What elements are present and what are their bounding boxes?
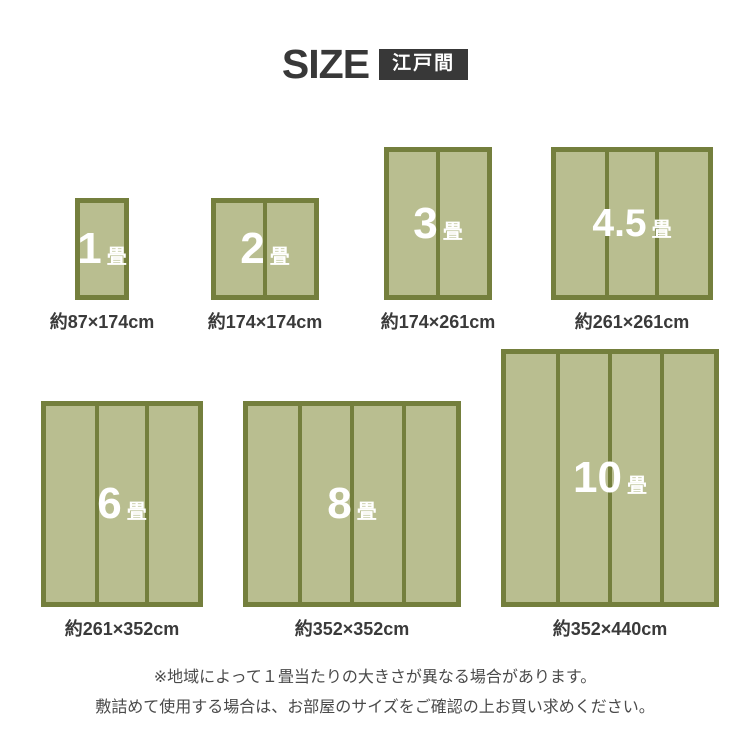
mat-size-label: 1 畳 [80, 203, 124, 295]
mat-size-number: 4.5 [592, 204, 646, 243]
mat-size-unit: 畳 [127, 495, 147, 524]
mat-size-number: 10 [573, 456, 622, 500]
tatami-mat-3jo: 3 畳 [384, 147, 492, 300]
mat-size-number: 3 [413, 202, 437, 246]
mat-size-unit: 畳 [107, 240, 127, 269]
tatami-mat-1jo: 1 畳 [75, 198, 129, 300]
mat-size-number: 6 [97, 482, 121, 526]
note-line-2: 敷詰めて使用する場合は、お部屋のサイズをご確認の上お買い求めください。 [0, 693, 750, 723]
tatami-mat-10jo: 10 畳 [501, 349, 719, 607]
tatami-mat-8jo: 8 畳 [243, 401, 461, 607]
mat-dimension-label: 約174×174cm [208, 308, 323, 334]
mat-size-unit: 畳 [270, 240, 290, 269]
mat-size-label: 4.5 畳 [556, 152, 708, 295]
mat-size-unit: 畳 [652, 213, 672, 242]
page-title: SIZE [282, 44, 369, 85]
mat-size-unit: 畳 [627, 469, 647, 498]
footer-notes: ※地域によって１畳当たりの大きさが異なる場合があります。 敷詰めて使用する場合は… [0, 663, 750, 724]
mat-dimension-label: 約261×261cm [575, 308, 690, 334]
tatami-mat-4-5jo: 4.5 畳 [551, 147, 713, 300]
mat-size-number: 1 [77, 227, 101, 271]
mat-size-unit: 畳 [357, 495, 377, 524]
edoma-standard-badge: 江戸間 [379, 49, 468, 80]
mat-size-label: 6 畳 [46, 406, 198, 602]
mat-size-unit: 畳 [443, 215, 463, 244]
note-line-1: ※地域によって１畳当たりの大きさが異なる場合があります。 [0, 663, 750, 693]
mat-size-number: 8 [327, 482, 351, 526]
mat-dimension-label: 約352×440cm [553, 615, 668, 641]
mat-dimension-label: 約261×352cm [65, 615, 180, 641]
mat-size-label: 3 畳 [389, 152, 487, 295]
mat-size-label: 10 畳 [506, 354, 714, 602]
tatami-mat-2jo: 2 畳 [211, 198, 319, 300]
mat-dimension-label: 約352×352cm [295, 615, 410, 641]
mat-dimension-label: 約174×261cm [381, 308, 496, 334]
mat-dimension-label: 約87×174cm [50, 308, 155, 334]
mat-size-label: 8 畳 [248, 406, 456, 602]
header: SIZE 江戸間 [0, 44, 750, 85]
size-chart: SIZE 江戸間 1 畳 約87×174cm 2 畳 約174×174cm 3 … [0, 0, 750, 750]
mat-size-label: 2 畳 [216, 203, 314, 295]
mat-size-number: 2 [240, 227, 264, 271]
tatami-mat-6jo: 6 畳 [41, 401, 203, 607]
